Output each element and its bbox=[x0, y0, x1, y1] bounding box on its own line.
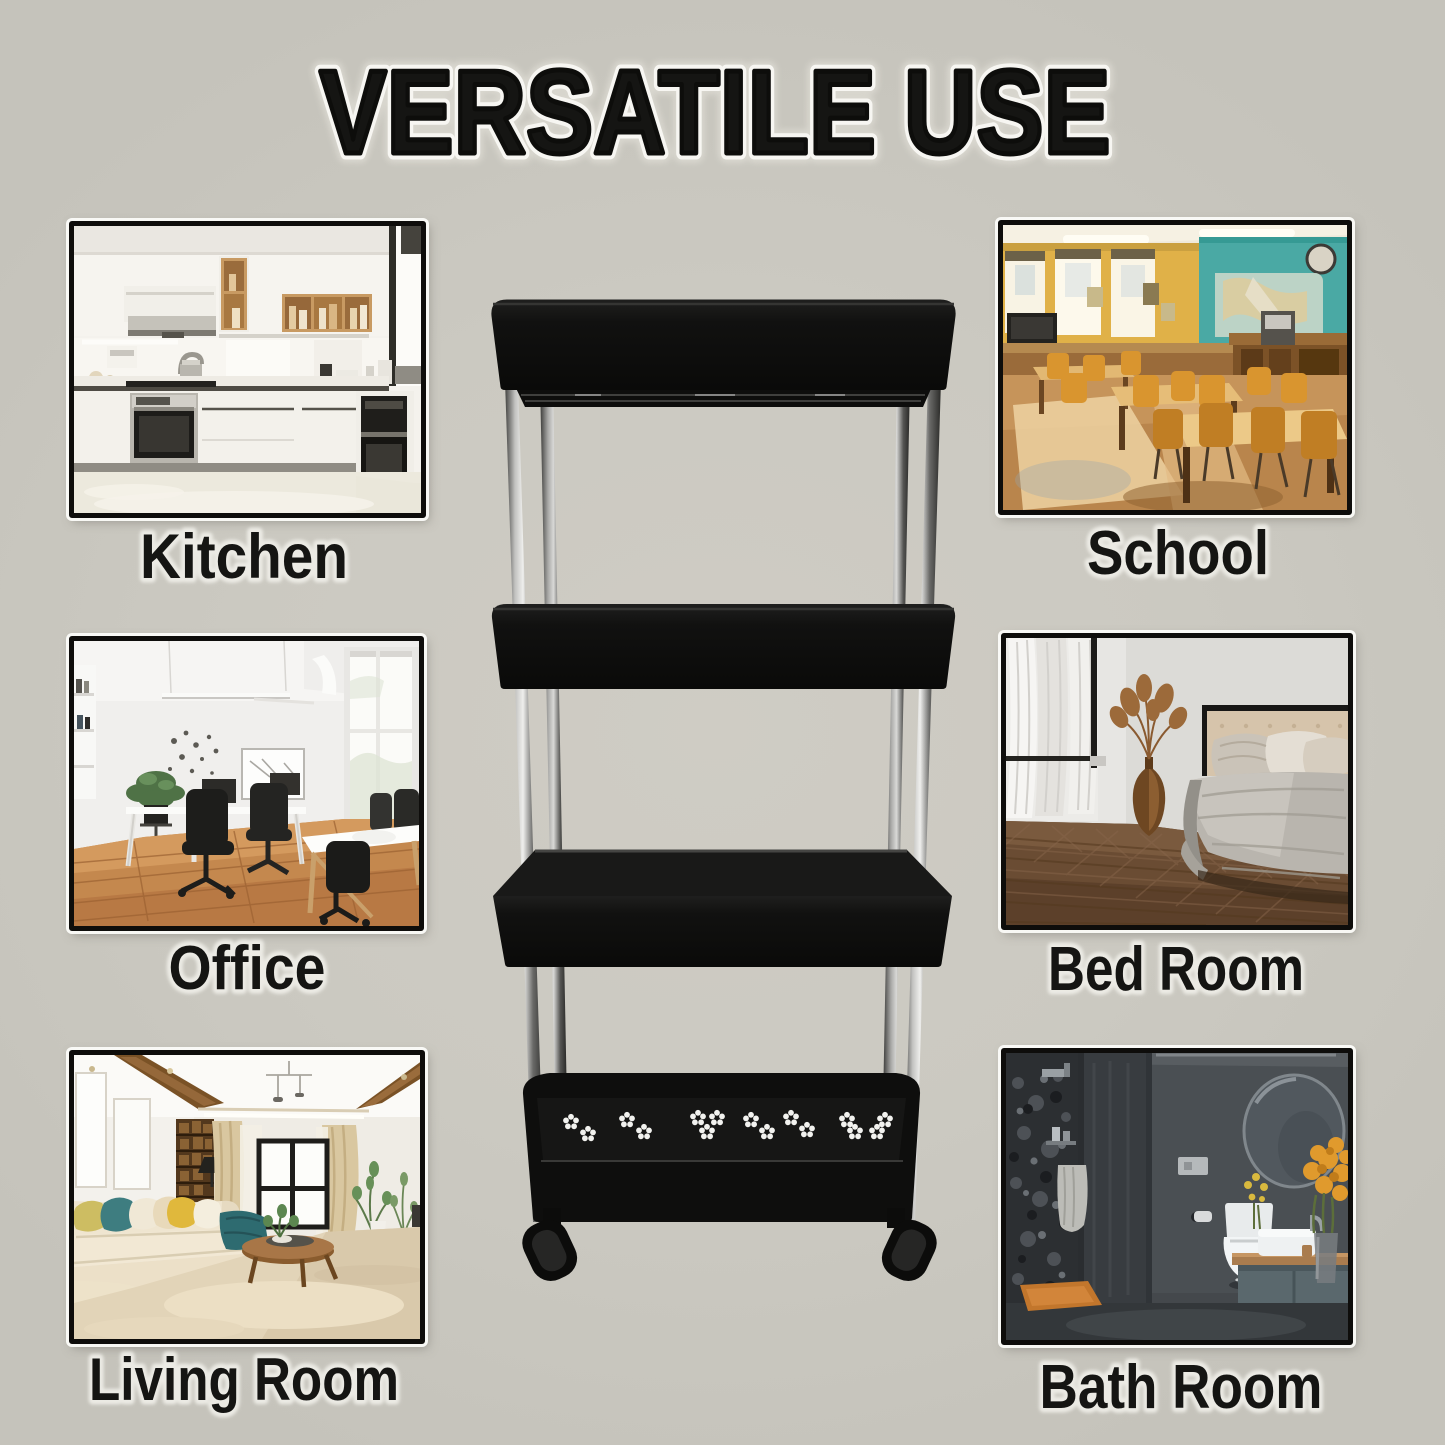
svg-text:Office: Office bbox=[169, 934, 326, 1003]
svg-text:Kitchen: Kitchen bbox=[140, 522, 348, 592]
svg-text:Living Room: Living Room bbox=[89, 1346, 399, 1413]
svg-text:School: School bbox=[1087, 519, 1269, 588]
svg-text:Bath Room: Bath Room bbox=[1040, 1353, 1323, 1422]
svg-text:Bed Room: Bed Room bbox=[1048, 935, 1304, 1004]
svg-text:VERSATILE USE: VERSATILE USE bbox=[320, 46, 1111, 179]
